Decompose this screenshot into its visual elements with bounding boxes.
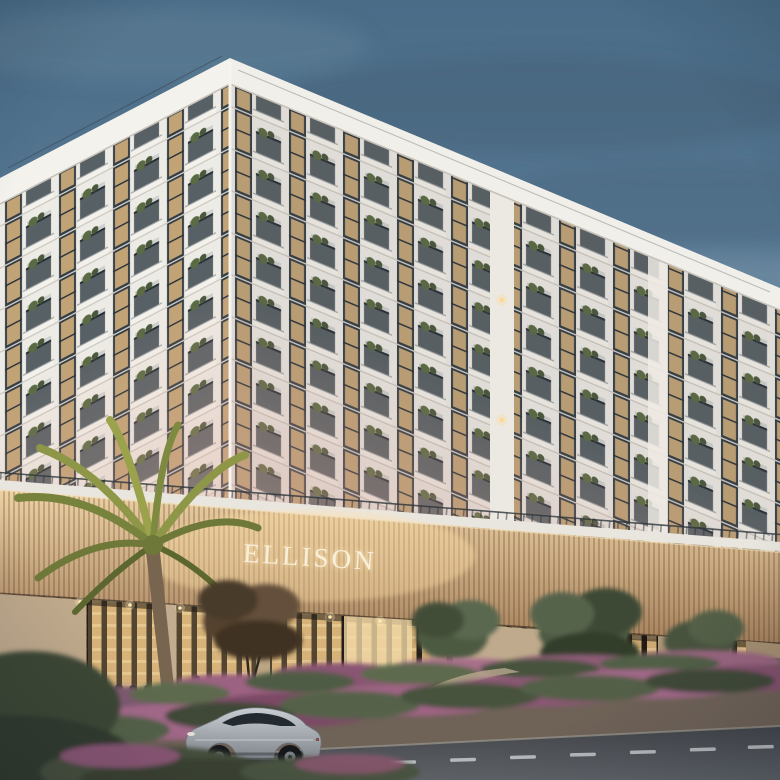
vignette-overlay xyxy=(0,0,780,780)
ellison-building-rendering: ELLISON ELLISON xyxy=(0,0,780,780)
rendering-canvas: ELLISON ELLISON xyxy=(0,0,780,780)
